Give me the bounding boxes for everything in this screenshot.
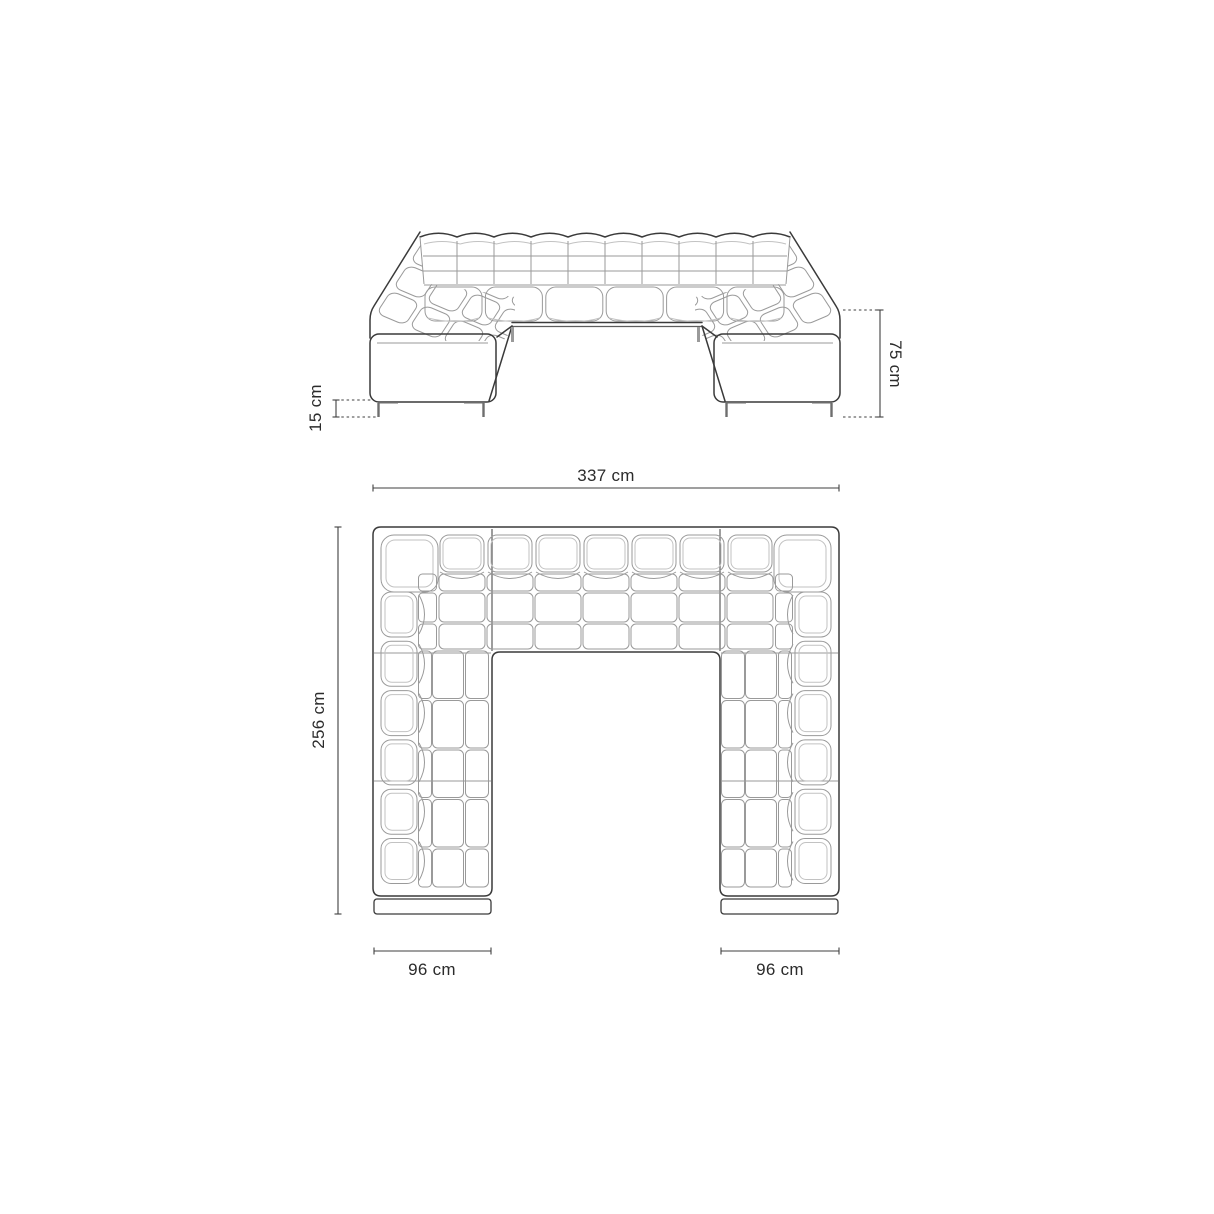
- front-view-drawing: [370, 232, 840, 417]
- left-wing-tufting: [377, 239, 586, 381]
- dim-label-total-depth: 256 cm: [309, 691, 329, 749]
- top-view-drawing: [373, 527, 839, 914]
- dim-label-right-arm-width: 96 cm: [756, 960, 804, 980]
- dim-label-leg-height: 15 cm: [306, 384, 326, 432]
- right-wing-tufting: [625, 239, 834, 381]
- dim-label-total-width: 337 cm: [577, 466, 635, 486]
- dim-label-total-height: 75 cm: [885, 340, 905, 388]
- sofa-dimension-diagram: 15 cm 75 cm 337 cm 256 cm 96 cm 96 cm: [0, 0, 1214, 1214]
- dim-label-left-arm-width: 96 cm: [408, 960, 456, 980]
- diagram-canvas: [0, 0, 1214, 1214]
